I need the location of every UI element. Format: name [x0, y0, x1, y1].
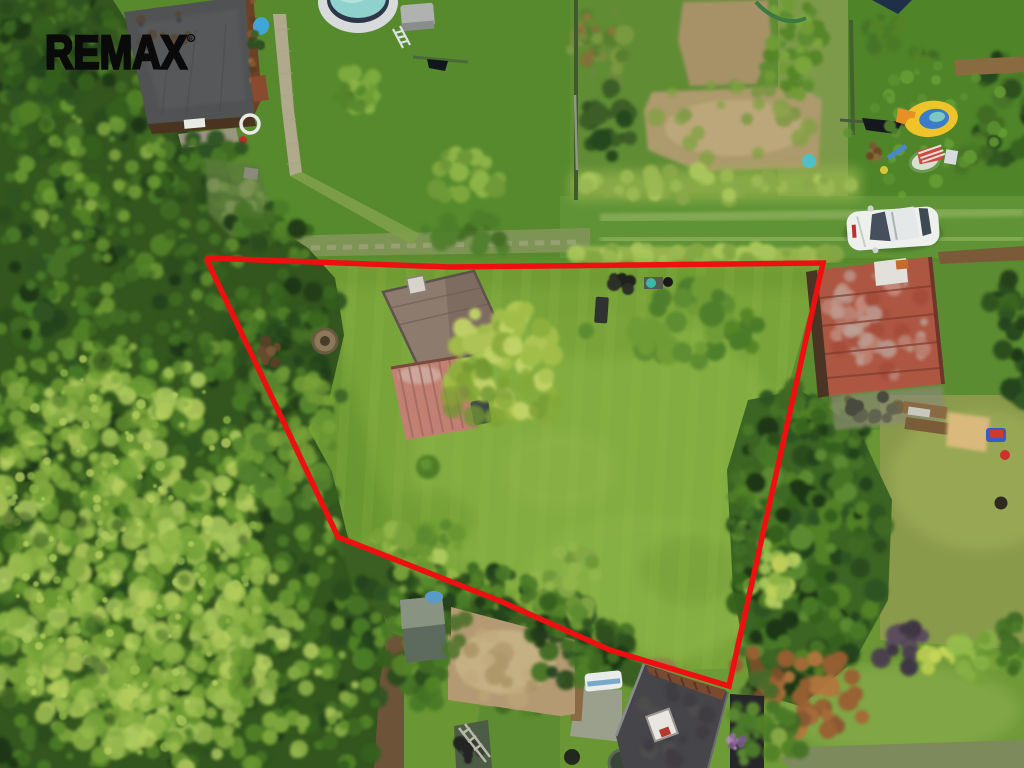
svg-text:REMAX: REMAX [45, 26, 187, 79]
svg-text:R: R [189, 37, 193, 43]
